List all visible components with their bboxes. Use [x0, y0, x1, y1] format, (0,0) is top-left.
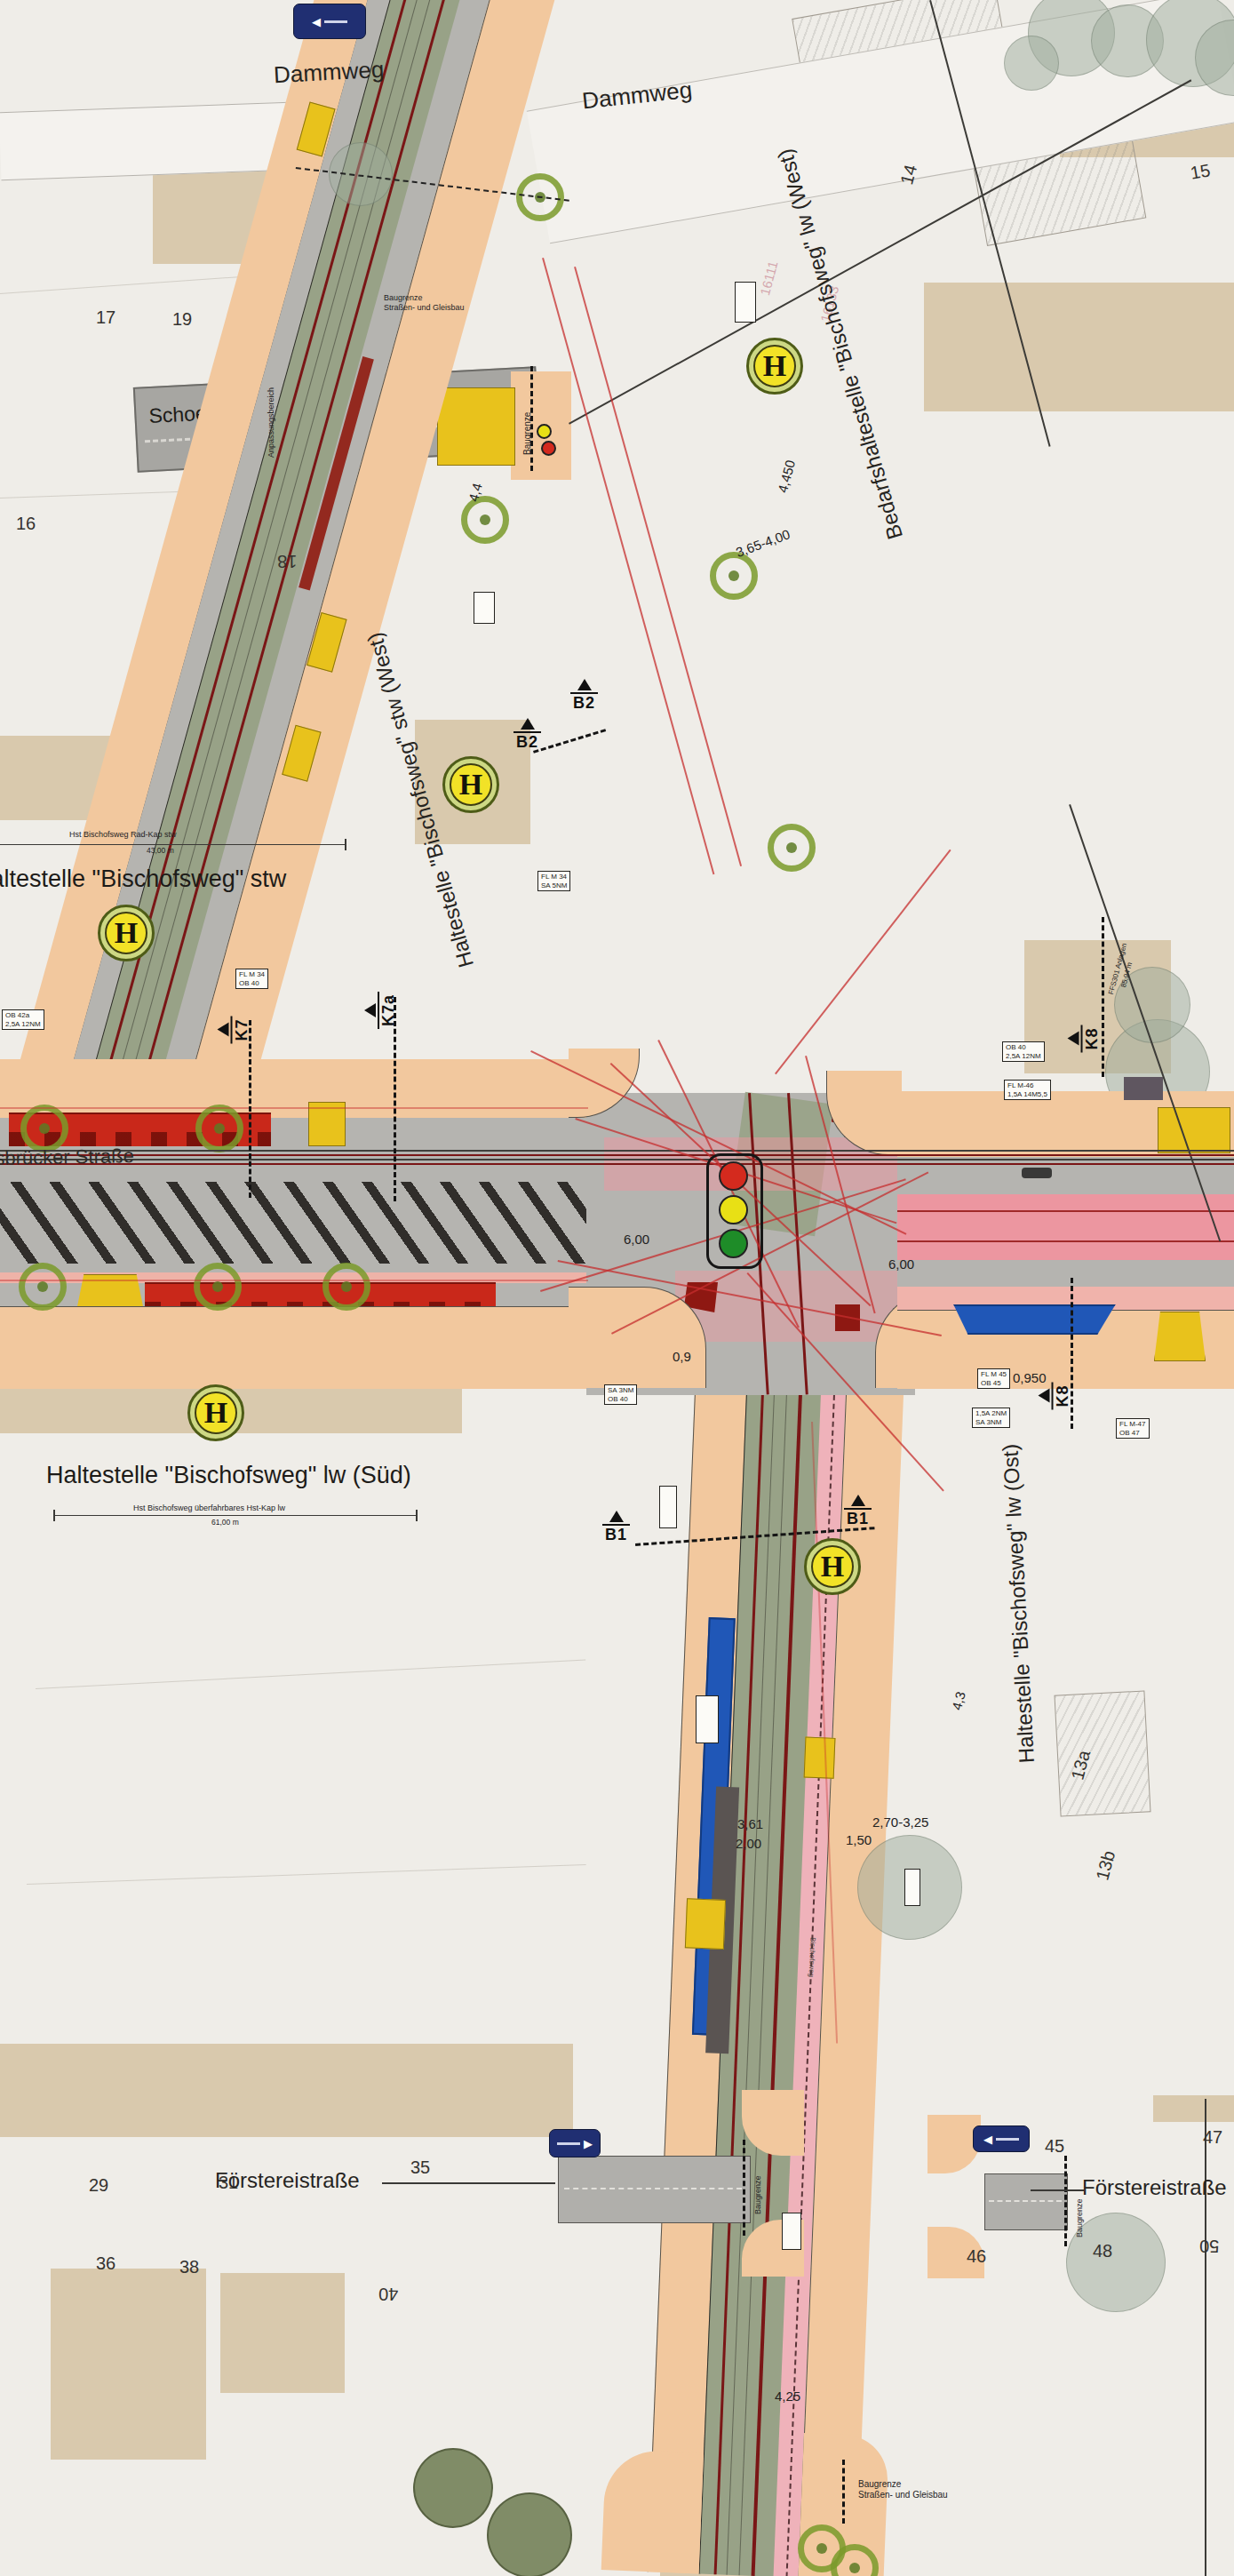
tree-icon [19, 1263, 67, 1311]
street-label-bischofsweg: Bischofsweg [808, 1937, 817, 1977]
tree-trunk [480, 514, 490, 525]
hatched-parcel [1054, 1690, 1150, 1816]
tram-stop-h-letter: H [459, 770, 482, 800]
section-marker-b1: B1 [844, 1495, 872, 1528]
parcel-id: 16111 [757, 259, 781, 298]
signal-red-light [719, 1161, 748, 1191]
arrow-right-icon: ▶ [584, 2137, 593, 2150]
lane-dash-line [989, 2200, 1062, 2202]
sidewalk-south [0, 1306, 613, 1389]
dimension: 0,9 [673, 1349, 691, 1364]
street-label-dammweg: Dammweg [273, 56, 385, 89]
tree-trunk [214, 1123, 225, 1134]
tram-stop-h-letter: H [763, 351, 786, 381]
house-number: 47 [1203, 2127, 1222, 2148]
house-number: 35 [410, 2157, 430, 2178]
signal-cable [542, 258, 714, 874]
stop-surface-yellow [685, 1898, 726, 1950]
measure-caption: Hst Bischofsweg überfahrbares Hst-Kap lw [133, 1503, 285, 1512]
parcel-line [36, 1660, 585, 1689]
gleisbau-label: Straßen- und Gleisbau [858, 2490, 948, 2500]
stop-label-ost: Haltestelle "Bischofsweg" lw (Ost) [998, 1443, 1039, 1764]
dimension: 2,70-3,25 [872, 1814, 928, 1830]
tram-stop-h-inner: H [450, 763, 492, 806]
tram-rail [0, 1154, 1234, 1156]
route-sign-icon: ◀ [973, 2125, 1030, 2152]
tram-rail [897, 1240, 1234, 1242]
dimension: 4,3 [949, 1690, 968, 1712]
baugrenze-label: Baugrenze [858, 2479, 901, 2489]
dimension: 1,50 [846, 1832, 872, 1847]
route-sign-icon: ▶ [549, 2129, 601, 2157]
dimension: 2,00 [736, 1836, 761, 1851]
street-label-foerstereistrasse: Förstereistraße [1082, 2175, 1227, 2200]
anpassungsbereich-label: Anpassungsbereich [267, 387, 275, 458]
house-number: 38 [179, 2257, 199, 2277]
car-symbol [1022, 1168, 1052, 1178]
house-number: 48 [1093, 2241, 1112, 2261]
tram-stop-h-inner: H [753, 345, 796, 387]
stop-surface-yellow [1158, 1107, 1230, 1153]
equipment-box-small [696, 1695, 719, 1743]
lane [897, 1260, 1234, 1287]
lane-dash-line [564, 2188, 742, 2189]
section-marker-k8: K8 [1068, 1025, 1102, 1052]
section-triangle-icon [1039, 1389, 1050, 1403]
equipment-box: OB 42a2,5A 12NM [2, 1009, 44, 1030]
tree-icon [461, 496, 509, 544]
signal-yellow-light [719, 1195, 748, 1224]
section-triangle-icon [521, 718, 535, 730]
stop-surface-yellow [437, 387, 515, 466]
site-plan: Schoenbrunnstraße Baugrenze Anpassungsbe… [0, 0, 1234, 2576]
house-number: 16 [16, 514, 36, 534]
tree-icon [194, 1263, 242, 1311]
tree-trunk [341, 1281, 352, 1292]
baugrenze-label: Baugrenze [384, 293, 423, 302]
route-sign-icon: ◀ [293, 4, 366, 39]
equipment-box-small [735, 282, 756, 323]
section-marker-b2: B2 [514, 718, 541, 752]
arrow-left-icon: ◀ [312, 15, 321, 28]
building [924, 283, 1234, 411]
house-number: 50 [1199, 2236, 1219, 2256]
traffic-signal-icon [706, 1153, 763, 1269]
dark-structure [1124, 1077, 1163, 1100]
section-triangle-icon [851, 1495, 865, 1506]
sidewalk-flare [601, 2449, 704, 2573]
platform-edge-red [0, 1107, 588, 1109]
measure-line [0, 844, 346, 845]
gleisbau-label: Straßen- und Gleisbau [384, 303, 465, 312]
baugrenze-dashed-line [842, 2460, 845, 2524]
equipment-box-small [659, 1486, 677, 1528]
tree-icon [322, 1263, 370, 1311]
section-marker-k7a: K7a [364, 992, 398, 1029]
track-line [0, 1159, 1234, 1160]
dimension: 4,450 [775, 459, 798, 495]
house-number: 13b [1092, 1848, 1119, 1882]
measure-length: 43,00 m [147, 846, 174, 855]
dimension: 3,61 [737, 1816, 763, 1831]
measure-line [53, 1515, 418, 1516]
measure-length: 61,00 m [211, 1518, 239, 1527]
tree-icon [195, 1105, 243, 1152]
tram-stop-h-symbol: H [804, 1538, 861, 1595]
sidewalk-corner [569, 1287, 706, 1388]
tree-icon [768, 824, 816, 872]
tree-trunk [816, 2543, 827, 2554]
dimension: 3,65-4,00 [734, 526, 792, 560]
track-line [0, 1150, 1234, 1152]
equipment-box-small [474, 592, 495, 624]
house-number: 29 [89, 2175, 108, 2196]
tree-canopy-icon [1004, 36, 1059, 91]
baugrenze-dashed-line [743, 2140, 745, 2236]
tram-stop-h-symbol: H [442, 756, 499, 813]
measure-tick [53, 1510, 55, 1521]
sign-text-bar [996, 2138, 1019, 2141]
house-number: 40 [378, 2284, 398, 2304]
street-label-foerstereistrasse: Förstereistraße [215, 2168, 360, 2193]
sign-text-bar [324, 20, 347, 23]
tree-trunk [728, 570, 739, 581]
section-triangle-icon [577, 679, 592, 690]
baugrenze-label: Baugrenze [1075, 2198, 1084, 2237]
tram-stop-h-symbol: H [746, 338, 803, 395]
equipment-box: SA 3NMOB 40 [604, 1384, 637, 1405]
label-leader-line [382, 2182, 555, 2184]
tram-stop-h-inner: H [811, 1545, 854, 1588]
tram-band-pink [897, 1194, 1234, 1260]
survey-line [1205, 2099, 1206, 2576]
tram-stop-h-inner: H [195, 1392, 237, 1434]
house-number: 15 [1189, 160, 1212, 184]
crosswalk-hatch [0, 1182, 611, 1264]
equipment-box-small [782, 2213, 801, 2250]
house-number: 17 [96, 307, 115, 328]
sign-text-bar [557, 2142, 580, 2145]
foerstereistrasse-roadband [558, 2156, 751, 2223]
signal-green-light [719, 1229, 748, 1258]
dimension: 6,00 [888, 1256, 914, 1272]
baugrenze-dashed-line [1064, 2156, 1067, 2246]
measure-tick [416, 1510, 418, 1521]
equipment-box: FL M 34SA 5NM [537, 871, 570, 891]
stop-label-stw: Haltestelle "Bischofsweg" stw [0, 865, 286, 893]
section-triangle-icon [218, 1023, 229, 1037]
house-number: 36 [96, 2253, 115, 2274]
platform-edge-red [0, 1280, 588, 1281]
tree-dark-icon [413, 2448, 493, 2528]
tree-icon [710, 552, 758, 600]
tram-rail [0, 1163, 1234, 1165]
section-marker-k8: K8 [1039, 1382, 1072, 1409]
measure-tick [345, 839, 346, 850]
section-triangle-icon [364, 1003, 376, 1017]
measure-caption: Hst Bischofsweg Rad-Kap stw [69, 830, 177, 839]
tram-rail [897, 1210, 1234, 1212]
building [220, 2273, 345, 2393]
equipment-box-small [904, 1869, 920, 1906]
stop-surface-yellow [804, 1737, 836, 1779]
street-label-koenigsbruecker: Königsbrücker Straße [0, 1144, 134, 1171]
tram-stop-h-inner: H [105, 912, 147, 954]
label-leader-line [1031, 2189, 1084, 2191]
equipment-box: FL M 34OB 40 [235, 969, 268, 989]
section-dashed-line [249, 1020, 251, 1198]
stop-surface-yellow [1154, 1312, 1206, 1361]
tram-stop-h-symbol: H [98, 905, 155, 961]
equipment-box: FL M-47OB 47 [1116, 1418, 1150, 1439]
section-triangle-icon [1068, 1032, 1079, 1046]
tram-stop-h-letter: H [115, 918, 138, 948]
house-number: 46 [967, 2246, 986, 2267]
section-dashed-line [1102, 917, 1104, 1077]
section-marker-k7: K7 [218, 1016, 251, 1043]
equipment-box: FL M 45OB 45 [977, 1368, 1010, 1389]
signal-red-dot [541, 441, 556, 456]
tree-trunk [37, 1281, 48, 1292]
tree-trunk [786, 842, 797, 853]
dimension: 4,25 [775, 2389, 800, 2404]
foerstereistrasse-roadband [984, 2173, 1068, 2230]
signal-cable [775, 849, 951, 1074]
baugrenze-label: Baugrenze [753, 2175, 762, 2214]
building [0, 2044, 573, 2137]
house-number: 18 [277, 551, 297, 571]
tree-trunk [39, 1123, 50, 1134]
tram-stop-h-letter: H [204, 1398, 227, 1428]
parcel-line [27, 1864, 586, 1885]
house-number: 45 [1045, 2136, 1064, 2157]
stop-label-sued: Haltestelle "Bischofsweg" lw (Süd) [46, 1462, 411, 1489]
dimension: 6,00 [624, 1232, 649, 1247]
building [51, 2269, 206, 2460]
sidewalk-north [0, 1059, 613, 1119]
section-marker-b1: B1 [602, 1511, 630, 1544]
equipment-box: OB 402,5A 12NM [1002, 1041, 1045, 1062]
equipment-box: 1,5A 2NMSA 3NM [972, 1408, 1010, 1428]
signal-yellow-dot [537, 424, 552, 439]
arrow-left-icon: ◀ [983, 2133, 992, 2146]
baugrenze-label: Baugrenze [522, 412, 532, 455]
section-dashed-line [533, 729, 606, 754]
tram-stop-h-symbol: H [187, 1384, 244, 1441]
tree-trunk [849, 2563, 860, 2573]
building [1153, 2095, 1234, 2122]
tram-stop-h-letter: H [821, 1551, 844, 1582]
equipment-box: FL M-461,5A 14M5,5 [1004, 1080, 1051, 1100]
house-number: 14 [896, 163, 921, 187]
section-marker-b2: B2 [570, 679, 598, 713]
tree-dark-icon [487, 2492, 572, 2576]
section-triangle-icon [609, 1511, 624, 1522]
house-number: 19 [172, 309, 192, 330]
tree-trunk [212, 1281, 223, 1292]
